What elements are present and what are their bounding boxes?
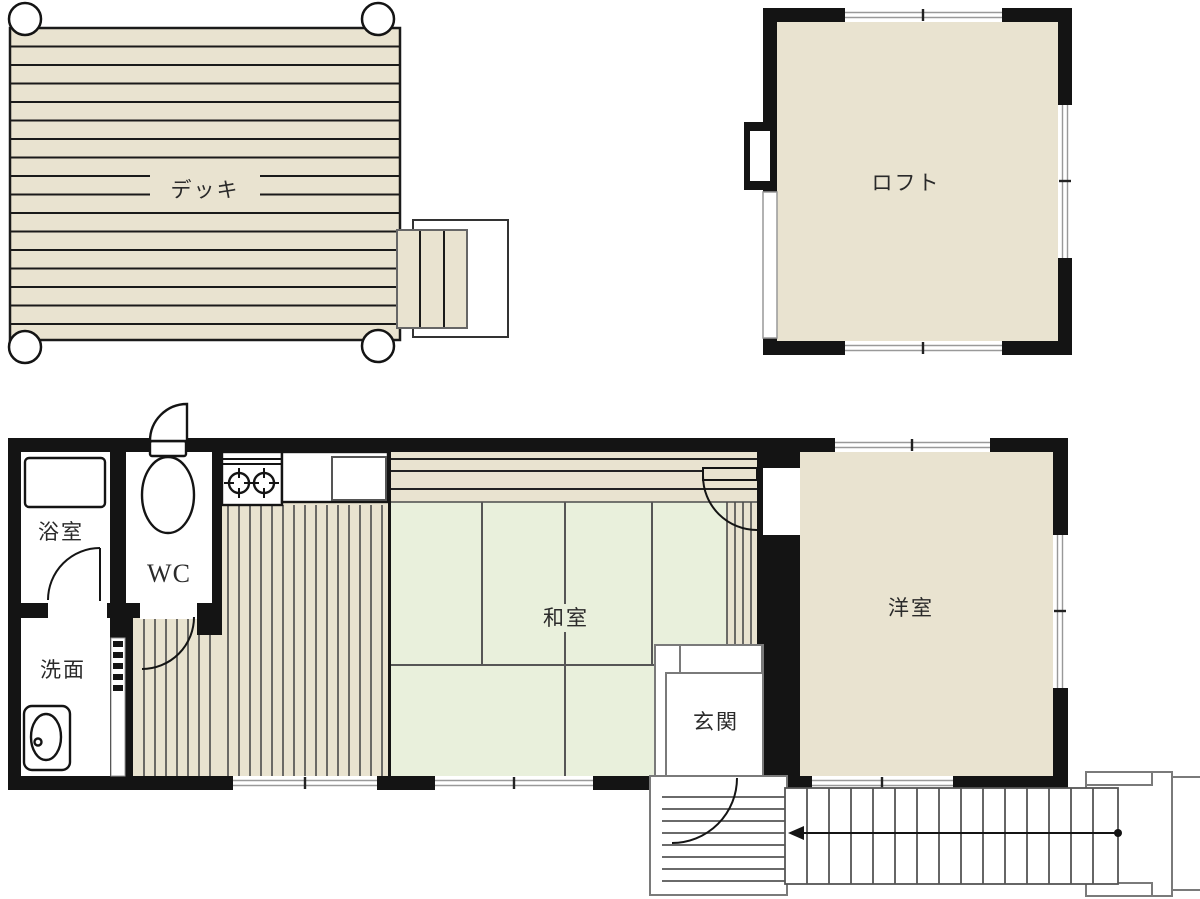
loft-window-bottom-icon [845,341,1002,355]
deck-post-icon [362,3,394,35]
tatami-label: 和室 [543,606,589,630]
entrance-step [680,645,762,673]
loft-window-right-icon [1058,105,1072,258]
bathtub-icon [25,458,105,507]
stairs-landing [650,776,787,895]
deck-area: デッキ [9,3,508,363]
floorplan-canvas: デッキ ロフト [0,0,1200,899]
western-room-door-opening [763,468,800,535]
loft-label: ロフト [872,171,941,195]
deck-post-icon [9,331,41,363]
deck-steps [397,220,508,337]
deck-post-icon [362,330,394,362]
toilet-icon [142,441,194,533]
loft-window-top-icon [845,8,1002,22]
wall-corner [197,603,222,635]
washbasin-icon [24,706,70,770]
window-bottom-tatami-icon [435,776,593,790]
stairs-run [785,788,1118,884]
bath-door-opening [48,602,107,619]
floorplan-drawing: デッキ ロフト [0,0,1200,899]
wc-label: WC [147,559,191,588]
deck-post-icon [9,3,41,35]
kitchen-counter [282,452,388,502]
wc-exterior-door-swing-icon [150,404,187,441]
window-top-western-icon [835,438,990,452]
loft-hatch-icon [744,122,777,190]
window-right-western-icon [1053,535,1068,688]
washroom-label: 洗面 [40,658,86,682]
window-bottom-hall-icon [233,776,377,790]
bath-label: 浴室 [38,520,84,544]
deck-label: デッキ [171,178,240,202]
loft-opening [763,192,777,338]
washroom-sliding-door-icon [111,638,125,776]
stove-icon [222,452,282,505]
exterior-stairs [650,772,1200,896]
western-label: 洋室 [888,596,934,620]
loft-area: ロフト [744,8,1072,355]
entrance-label: 玄関 [693,710,739,734]
wc-door-opening [140,602,197,619]
kitchen-sink-icon [332,457,386,500]
